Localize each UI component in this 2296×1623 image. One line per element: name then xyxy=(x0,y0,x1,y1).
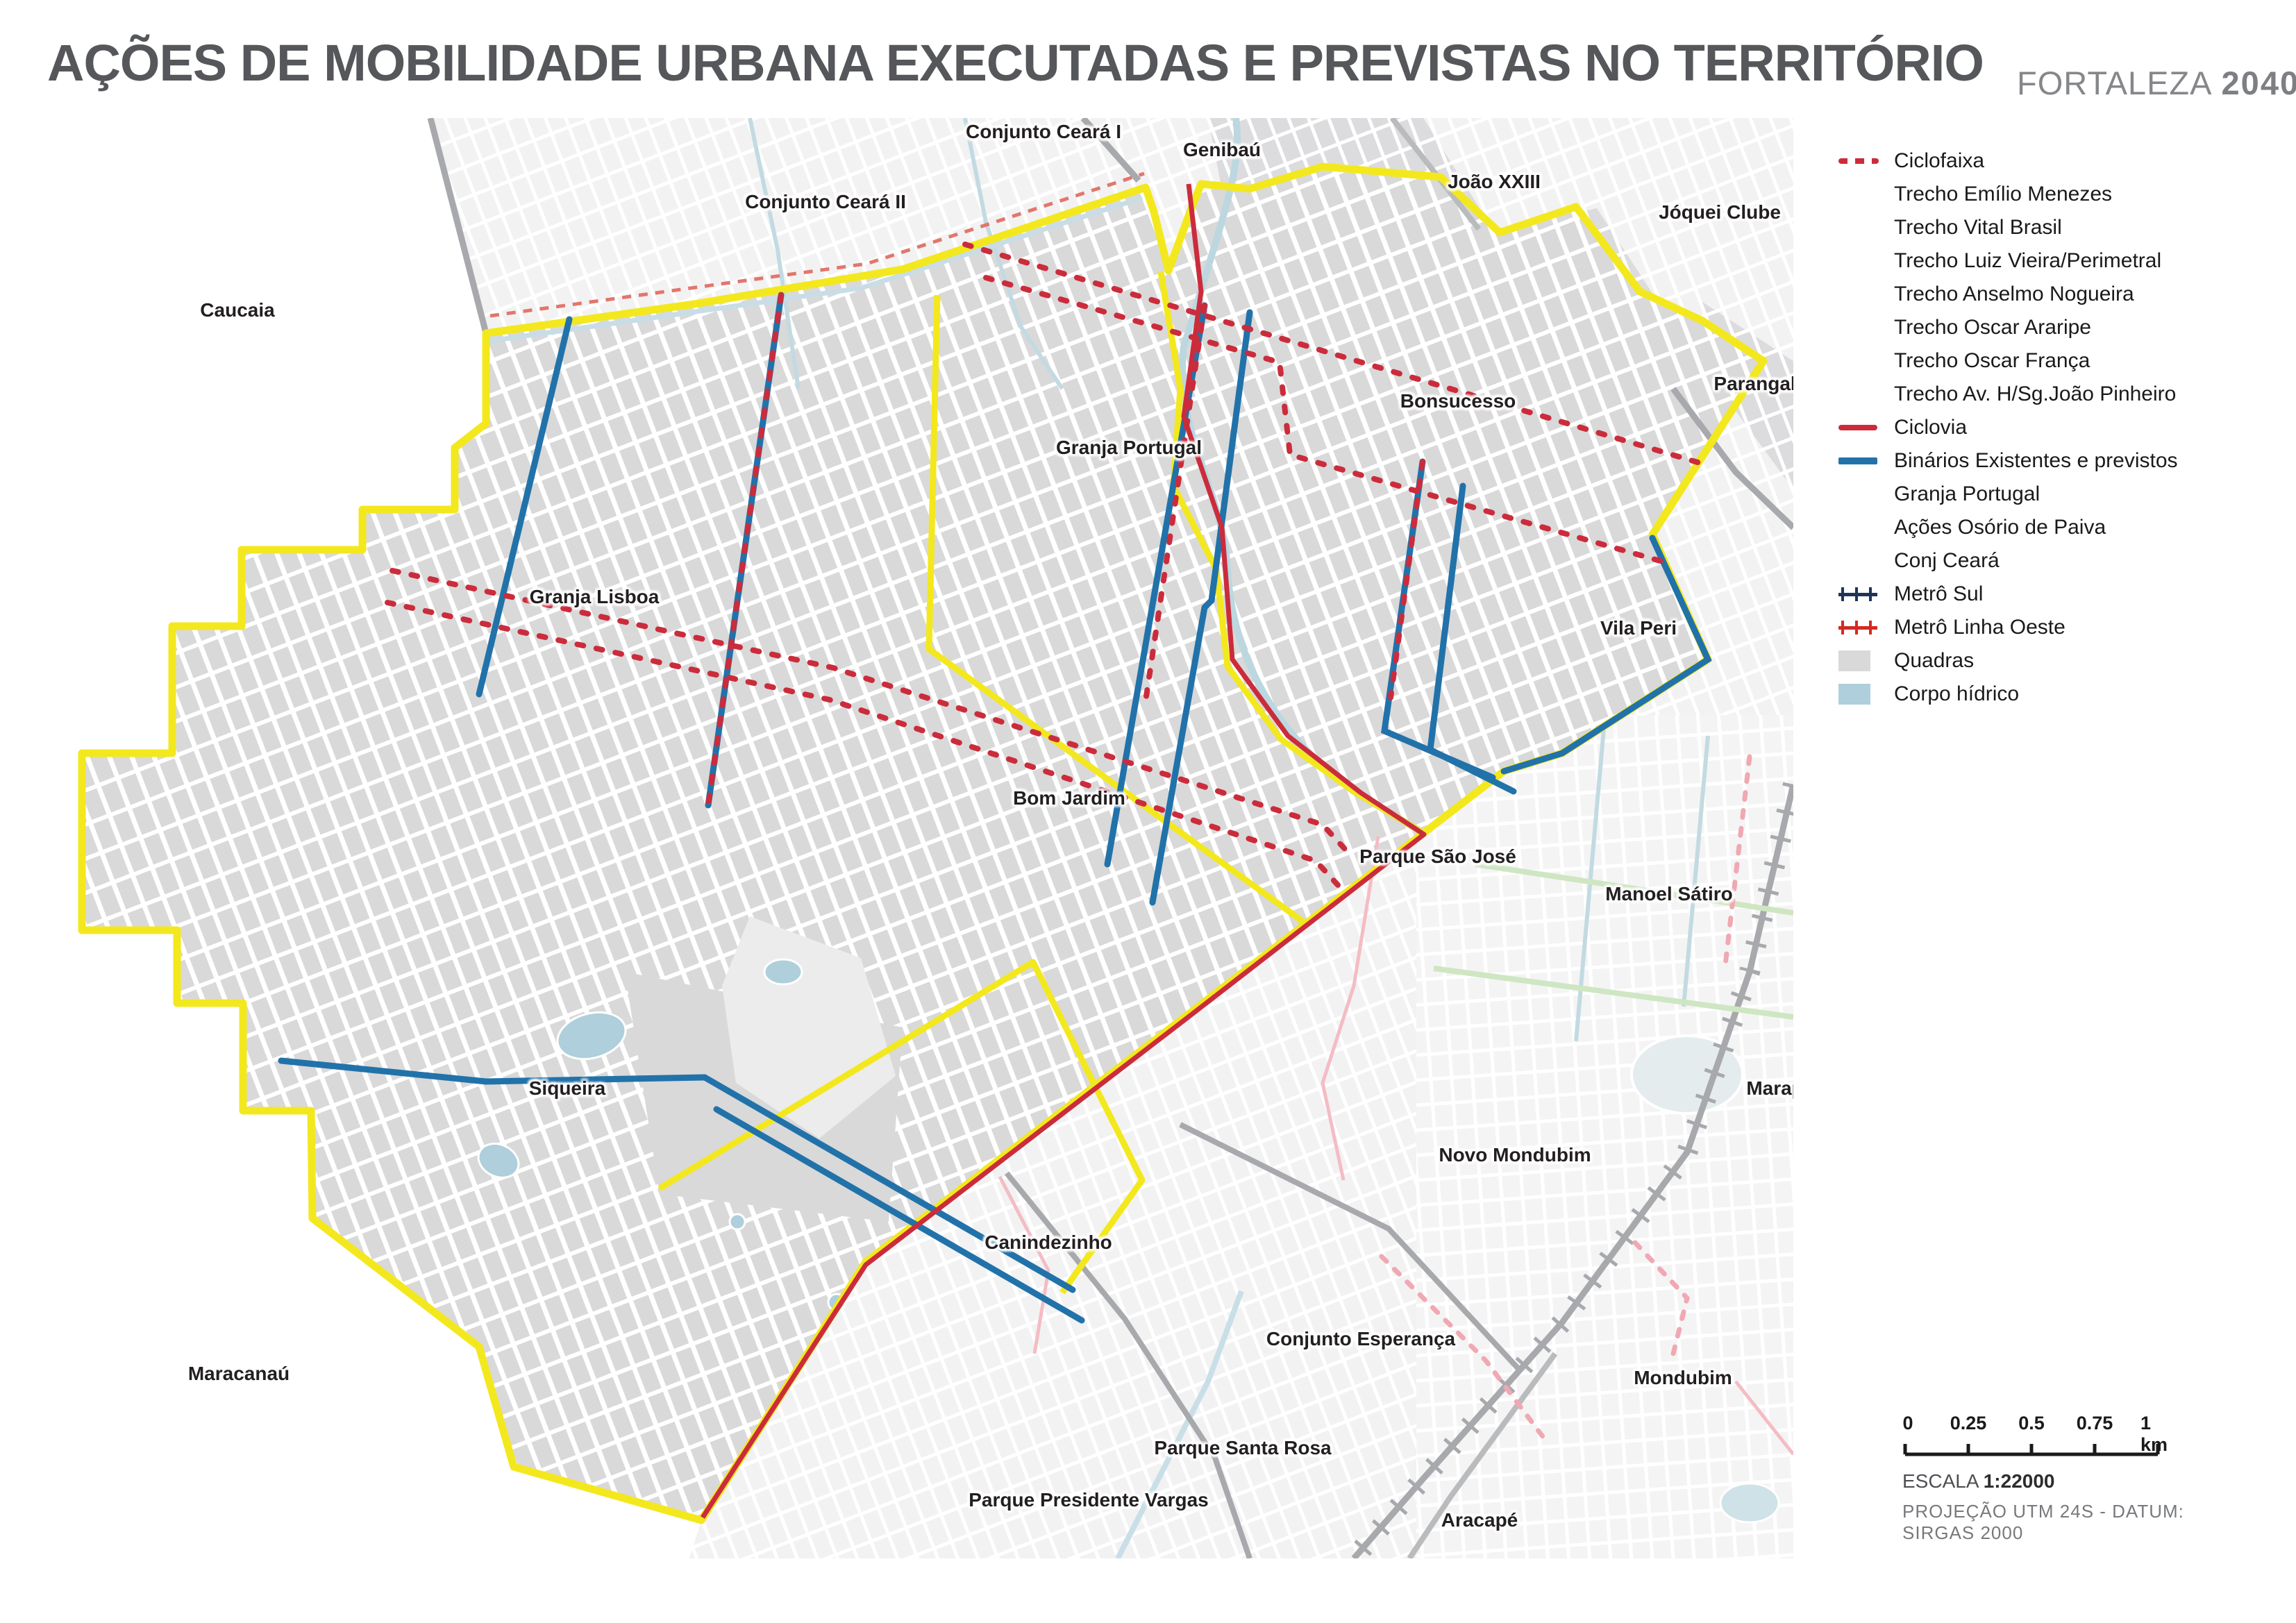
map-label-siqueira: Siqueira xyxy=(529,1077,605,1100)
projection-note: PROJEÇÃO UTM 24S - DATUM: SIRGAS 2000 xyxy=(1902,1501,2201,1544)
quadras-swatch-icon xyxy=(1838,650,1888,671)
map-label-bom-jardim: Bom Jardim xyxy=(1013,787,1125,809)
map-label-mondubim: Mondubim xyxy=(1634,1367,1732,1389)
map-label-conjunto-esperanca: Conjunto Esperança xyxy=(1266,1328,1455,1350)
corpo-hidrico-swatch-icon xyxy=(1838,684,1888,705)
page-title: AÇÕES DE MOBILIDADE URBANA EXECUTADAS E … xyxy=(47,33,1852,92)
scale-tick-05: 0.5 xyxy=(2018,1413,2045,1434)
basemap-graphics xyxy=(21,118,1793,1558)
map-label-maraponga: Maraponga xyxy=(1746,1077,1793,1100)
legend-item-trecho-oscar-franca: Trecho Oscar França xyxy=(1838,344,2290,378)
map-label-parque-sao-jose: Parque São José xyxy=(1359,846,1516,868)
scale-tick-025: 0.25 xyxy=(1950,1413,1987,1434)
map-label-canindezinho: Canindezinho xyxy=(984,1231,1112,1254)
legend-item-trecho-av-h-sg-joao-pinheiro: Trecho Av. H/Sg.João Pinheiro xyxy=(1838,378,2290,411)
map-label-joao-xxiii: João XXIII xyxy=(1448,171,1541,193)
scale-ratio: ESCALA 1:22000 xyxy=(1902,1470,2201,1492)
binarios-solid-line-icon xyxy=(1838,457,1888,464)
legend-item-trecho-vital-brasil: Trecho Vital Brasil xyxy=(1838,211,2290,244)
scale-bar-icon xyxy=(1902,1442,2180,1457)
map-label-maracanau: Maracanaú xyxy=(188,1363,290,1385)
legend-item-trecho-luiz-vieira-perimetral: Trecho Luiz Vieira/Perimetral xyxy=(1838,244,2290,278)
map-label-aracape: Aracapé xyxy=(1441,1509,1518,1531)
map-label-bonsucesso: Bonsucesso xyxy=(1400,390,1516,412)
scale-tick-1km: 1 km xyxy=(2140,1413,2181,1456)
map-label-parque-santa-rosa: Parque Santa Rosa xyxy=(1154,1437,1331,1459)
legend-item-binarios: Binários Existentes e previstos xyxy=(1838,444,2290,478)
map-label-novo-mondubim: Novo Mondubim xyxy=(1439,1144,1591,1166)
map-label-parque-presidente-vargas: Parque Presidente Vargas xyxy=(969,1489,1209,1511)
map-label-vila-peri: Vila Peri xyxy=(1600,617,1677,639)
legend-item-metro-linha-oeste: Metrô Linha Oeste xyxy=(1838,611,2290,644)
brand-name: FORTALEZA xyxy=(2017,65,2212,101)
ciclofaixa-dashed-line-icon xyxy=(1838,158,1888,164)
legend-item-quadras: Quadras xyxy=(1838,644,2290,678)
map-label-parangaba: Parangaba xyxy=(1713,373,1793,395)
map-label-conjunto-ceara-2: Conjunto Ceará II xyxy=(745,191,906,213)
scale-bar-block: 0 0.25 0.5 0.75 1 km ESCALA 1:22000 PROJ… xyxy=(1902,1413,2201,1544)
metro-oeste-railway-icon xyxy=(1838,621,1888,634)
map-label-joquei-clube: Jóquei Clube xyxy=(1659,201,1781,224)
map-label-manoel-satiro: Manoel Sátiro xyxy=(1605,883,1733,905)
map-label-genibau: Genibaú xyxy=(1183,139,1261,161)
scale-tick-labels: 0 0.25 0.5 0.75 1 km xyxy=(1902,1413,2201,1438)
legend-item-trecho-oscar-araripe: Trecho Oscar Araripe xyxy=(1838,311,2290,344)
legend-item-granja-portugal: Granja Portugal xyxy=(1838,478,2290,511)
map-label-granja-portugal: Granja Portugal xyxy=(1056,437,1202,459)
map-canvas: Conjunto Ceará I Genibaú João XXIII Jóqu… xyxy=(21,118,1793,1558)
legend-item-trecho-anselmo-nogueira: Trecho Anselmo Nogueira xyxy=(1838,278,2290,311)
map-label-conjunto-ceara-1: Conjunto Ceará I xyxy=(966,121,1121,143)
metro-sul-railway-icon xyxy=(1838,587,1888,601)
legend-item-conj-ceara: Conj Ceará xyxy=(1838,544,2290,578)
legend-item-metro-sul: Metrô Sul xyxy=(1838,578,2290,611)
legend-item-acoes-osorio-de-paiva: Ações Osório de Paiva xyxy=(1838,511,2290,544)
legend-item-trecho-emilio-menezes: Trecho Emílio Menezes xyxy=(1838,178,2290,211)
legend-item-corpo-hidrico: Corpo hídrico xyxy=(1838,678,2290,711)
map-label-granja-lisboa: Granja Lisboa xyxy=(530,586,660,608)
scale-ratio-value: 1:22000 xyxy=(1984,1470,2055,1492)
scale-tick-075: 0.75 xyxy=(2077,1413,2113,1434)
map-legend: Ciclofaixa Trecho Emílio Menezes Trecho … xyxy=(1838,144,2290,711)
legend-item-ciclofaixa: Ciclofaixa xyxy=(1838,144,2290,178)
scale-tick-0: 0 xyxy=(1902,1413,1913,1434)
map-label-caucaia: Caucaia xyxy=(200,299,274,321)
ciclovia-solid-line-icon xyxy=(1838,425,1888,430)
legend-item-ciclovia: Ciclovia xyxy=(1838,411,2290,444)
brand-logo: FORTALEZA 2040 xyxy=(2017,64,2296,102)
brand-year: 2040 xyxy=(2222,65,2296,101)
